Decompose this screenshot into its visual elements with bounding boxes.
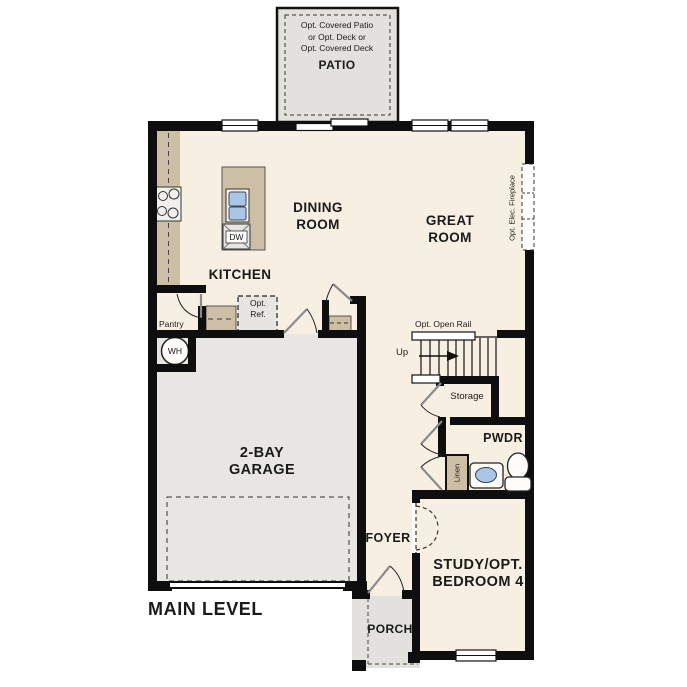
storage-label: Storage: [450, 391, 483, 402]
floorplan-drawing: [0, 0, 687, 687]
garage-label-line1: 2-BAY: [240, 445, 284, 461]
great-room-label-line2: ROOM: [428, 230, 472, 245]
window-greatroom-2: [451, 120, 488, 131]
pwdr-label: PWDR: [483, 431, 523, 445]
toilet: [505, 453, 531, 491]
floorplan-canvas: Opt. Covered Patio or Opt. Deck or Opt. …: [0, 0, 687, 687]
study-label-line2: BEDROOM 4: [432, 574, 523, 590]
up-label: Up: [396, 347, 408, 358]
open-rail-label: Opt. Open Rail: [415, 319, 471, 329]
opt-electric-fireplace: [522, 164, 534, 250]
fireplace-label: Opt. Elec. Fireplace: [508, 175, 517, 241]
dining-room-label-line2: ROOM: [296, 217, 340, 232]
patio-opt-note-line1: Opt. Covered Patio: [301, 20, 373, 30]
kitchen-label: KITCHEN: [209, 267, 272, 282]
patio-opt-note-line3: Opt. Covered Deck: [301, 43, 373, 53]
closet-shelf: [329, 316, 351, 331]
patio-label: PATIO: [319, 58, 356, 72]
porch-label: PORCH: [367, 622, 412, 636]
stove-cooktop: [154, 187, 181, 221]
pantry-label: Pantry: [159, 319, 184, 329]
dining-room-label-line1: DINING: [293, 200, 343, 215]
opt-ref-label-line1: Opt.: [250, 298, 266, 308]
study-label-line1: STUDY/OPT.: [433, 557, 522, 573]
window-kitchen: [222, 120, 258, 131]
linen-label: Linen: [453, 464, 462, 482]
opt-ref-label-line2: Ref.: [250, 309, 266, 319]
garage-label-line2: GARAGE: [229, 462, 295, 478]
foyer-label: FOYER: [365, 531, 410, 545]
window-greatroom-1: [412, 120, 448, 131]
great-room-label-line1: GREAT: [426, 213, 474, 228]
water-heater-label: WH: [168, 346, 182, 356]
patio-opt-note-line2: or Opt. Deck or: [308, 32, 366, 42]
pwdr-sink: [470, 463, 503, 488]
garage-vehicle-door: [170, 581, 345, 589]
dishwasher-label: DW: [229, 232, 243, 242]
level-title: MAIN LEVEL: [148, 599, 263, 620]
window-study: [456, 650, 496, 661]
